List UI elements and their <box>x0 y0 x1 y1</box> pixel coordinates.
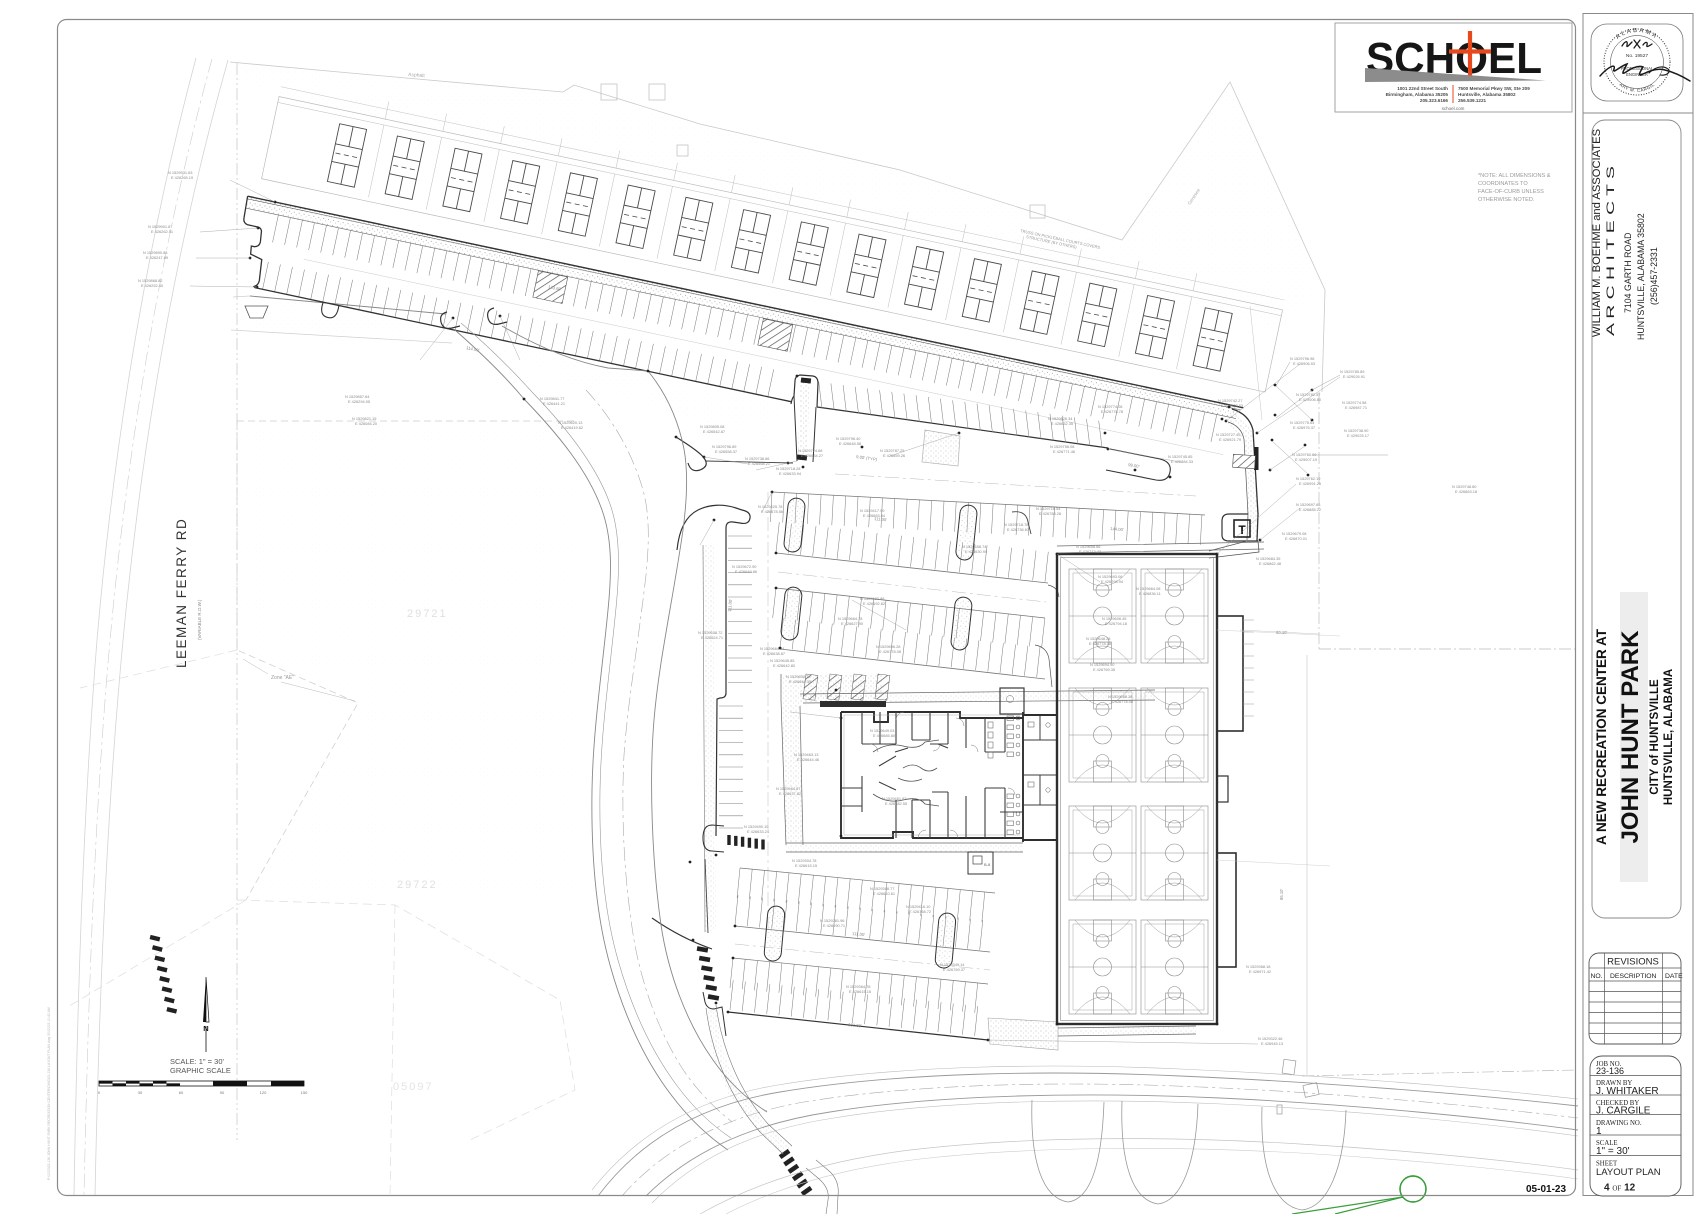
svg-text:E 429025.17: E 429025.17 <box>1347 433 1369 438</box>
svg-text:A R C H I T E C T S: A R C H I T E C T S <box>1605 166 1617 336</box>
svg-text:E 426637.82: E 426637.82 <box>779 791 801 796</box>
svg-text:E 426736.67: E 426736.67 <box>1007 527 1029 532</box>
svg-text:E 426788.28: E 426788.28 <box>1039 511 1061 516</box>
svg-text:WILLIAM M. BOEHME and ASSOCIAT: WILLIAM M. BOEHME and ASSOCIATES <box>1591 129 1603 337</box>
svg-text:E 426558.37: E 426558.37 <box>715 449 737 454</box>
svg-text:E 426542.87: E 426542.87 <box>703 429 725 434</box>
svg-text:E 426885.22: E 426885.22 <box>1299 507 1321 512</box>
svg-text:N: N <box>203 1024 208 1033</box>
svg-text:E 426644.46: E 426644.46 <box>797 757 819 762</box>
svg-text:CITY of HUNTSVILLE: CITY of HUNTSVILLE <box>1649 679 1661 795</box>
svg-text:E 426769.35: E 426769.35 <box>1093 667 1115 672</box>
svg-text:FACE-OF-CURB UNLESS: FACE-OF-CURB UNLESS <box>1478 189 1544 195</box>
svg-text:E 429006.80: E 429006.80 <box>1299 397 1322 402</box>
svg-text:E 426921.79: E 426921.79 <box>1219 437 1241 442</box>
svg-text:E 426615.15: E 426615.15 <box>795 863 817 868</box>
svg-text:(VARIABLE R.O.W.): (VARIABLE R.O.W.) <box>197 599 202 640</box>
svg-text:HUNTSVILLE, ALABAMA: HUNTSVILLE, ALABAMA <box>1663 669 1675 805</box>
svg-text:E 426638.87: E 426638.87 <box>763 651 785 656</box>
svg-text:E 426642.80: E 426642.80 <box>773 663 796 668</box>
svg-text:E 426683.64: E 426683.64 <box>863 513 886 518</box>
svg-text:OTHERWISE NOTED.: OTHERWISE NOTED. <box>1478 197 1535 203</box>
svg-text:E 426987.71: E 426987.71 <box>1345 405 1367 410</box>
svg-text:E 426971.42: E 426971.42 <box>1249 969 1271 974</box>
svg-text:E 426976.37: E 426976.37 <box>1293 425 1315 430</box>
svg-text:Birmingham, Alabama 35205: Birmingham, Alabama 35205 <box>1386 92 1449 97</box>
svg-text:DESCRIPTION: DESCRIPTION <box>1610 973 1657 980</box>
svg-text:E 426627.90: E 426627.90 <box>841 621 864 626</box>
svg-text:E 426778.08: E 426778.08 <box>1089 641 1111 646</box>
svg-text:30: 30 <box>138 1090 143 1095</box>
svg-text:29721: 29721 <box>407 608 448 620</box>
svg-text:E 426633.94: E 426633.94 <box>779 471 802 476</box>
svg-text:29722: 29722 <box>397 879 438 891</box>
svg-text:E 426624.71: E 426624.71 <box>701 635 723 640</box>
svg-text:4 OF 12: 4 OF 12 <box>1604 1183 1636 1194</box>
svg-text:E 426945.13: E 426945.13 <box>1261 1041 1283 1046</box>
svg-text:E 426906.53: E 426906.53 <box>1293 361 1315 366</box>
svg-text:7104 GARTH ROAD: 7104 GARTH ROAD <box>1623 232 1633 313</box>
svg-text:E 426713.43: E 426713.43 <box>1079 549 1101 554</box>
svg-text:E 426778.08: E 426778.08 <box>1111 699 1133 704</box>
svg-text:205.323.6166: 205.323.6166 <box>1420 98 1449 103</box>
svg-text:E 426294.05: E 426294.05 <box>348 399 370 404</box>
svg-text:E 429026.91: E 429026.91 <box>1343 374 1365 379</box>
svg-text:E 426419.62: E 426419.62 <box>561 425 583 430</box>
svg-text:DRAWING NO.: DRAWING NO. <box>1596 1120 1642 1127</box>
svg-text:*NOTE: ALL DIMENSIONS &: *NOTE: ALL DIMENSIONS & <box>1478 173 1551 179</box>
svg-text:05097: 05097 <box>393 1081 434 1093</box>
svg-text:schoel.com: schoel.com <box>1442 106 1465 111</box>
svg-text:Huntsville, Alabama 35802: Huntsville, Alabama 35802 <box>1458 92 1516 97</box>
svg-text:1001 22nd Street South: 1001 22nd Street South <box>1397 86 1448 91</box>
svg-text:E 426649.86: E 426649.86 <box>735 569 757 574</box>
svg-text:1" = 30': 1" = 30' <box>1596 1146 1630 1157</box>
svg-text:E 426659.26: E 426659.26 <box>883 453 905 458</box>
svg-text:SCALE: 1" = 30': SCALE: 1" = 30' <box>170 1057 224 1066</box>
svg-text:60: 60 <box>179 1090 184 1095</box>
svg-text:E 426192.82: E 426192.82 <box>863 601 885 606</box>
svg-text:E 426646.35: E 426646.35 <box>789 679 811 684</box>
svg-text:T: T <box>1238 523 1246 537</box>
svg-text:Zone "AE": Zone "AE" <box>271 675 294 681</box>
svg-text:E 426768.72: E 426768.72 <box>909 909 931 914</box>
svg-text:REVISIONS: REVISIONS <box>1607 957 1659 968</box>
svg-text:Asphalt: Asphalt <box>408 72 426 79</box>
svg-text:23-136: 23-136 <box>1596 1066 1624 1076</box>
svg-text:E 426615.15: E 426615.15 <box>849 989 871 994</box>
svg-text:E 426682.55: E 426682.55 <box>885 801 907 806</box>
svg-text:E 426862.48: E 426862.48 <box>1259 561 1281 566</box>
svg-text:E 426991.26: E 426991.26 <box>1299 481 1321 486</box>
svg-text:E 426648.58: E 426648.58 <box>839 441 861 446</box>
svg-text:E 426690.71: E 426690.71 <box>823 923 845 928</box>
svg-text:E 426568.21: E 426568.21 <box>748 461 770 466</box>
svg-text:1: 1 <box>1596 1126 1602 1137</box>
svg-text:E 426678.56: E 426678.56 <box>761 509 783 514</box>
svg-text:E 426863.18: E 426863.18 <box>1455 489 1477 494</box>
svg-text:05-01-23: 05-01-23 <box>1526 1184 1566 1195</box>
svg-text:E 426632.35: E 426632.35 <box>1051 421 1073 426</box>
svg-text:NO.: NO. <box>1590 973 1602 980</box>
svg-text:E 426084.20: E 426084.20 <box>355 421 378 426</box>
svg-text:JOHN HUNT PARK: JOHN HUNT PARK <box>1617 630 1644 844</box>
svg-text:DATE: DATE <box>1665 973 1683 980</box>
svg-text:E 426794.18: E 426794.18 <box>1105 621 1127 626</box>
svg-text:256.539.1221: 256.539.1221 <box>1458 98 1487 103</box>
svg-text:E 426610.61: E 426610.61 <box>873 891 895 896</box>
svg-text:E 426769.37: E 426769.37 <box>943 967 965 972</box>
svg-text:E 426630.90: E 426630.90 <box>965 549 988 554</box>
svg-text:120: 120 <box>260 1090 267 1095</box>
svg-text:No. 19527: No. 19527 <box>1626 53 1648 59</box>
svg-text:E 426441.21: E 426441.21 <box>543 401 565 406</box>
svg-text:E 426771.46: E 426771.46 <box>1053 449 1075 454</box>
svg-text:GRAPHIC SCALE: GRAPHIC SCALE <box>170 1066 231 1075</box>
svg-text:J. CARGILE: J. CARGILE <box>1596 1106 1651 1117</box>
svg-text:A NEW RECREATION CENTER AT: A NEW RECREATION CENTER AT <box>1594 628 1609 845</box>
svg-text:7500 Memorial Pkwy SW, Ste 209: 7500 Memorial Pkwy SW, Ste 209 <box>1458 86 1530 91</box>
svg-text:E 426884.33: E 426884.33 <box>1171 459 1193 464</box>
svg-text:HUNTSVILLE, ALABAMA 35802: HUNTSVILLE, ALABAMA 35802 <box>1636 213 1646 340</box>
svg-text:111.00': 111.00' <box>727 599 733 613</box>
svg-text:E 426836.11: E 426836.11 <box>1139 591 1161 596</box>
svg-text:E 426633.24: E 426633.24 <box>747 829 770 834</box>
svg-text:LAYOUT PLAN: LAYOUT PLAN <box>1596 1167 1661 1178</box>
svg-text:J. WHITAKER: J. WHITAKER <box>1596 1086 1659 1097</box>
svg-text:E 426247.89: E 426247.89 <box>146 255 168 260</box>
svg-text:E 426634.27: E 426634.27 <box>801 453 823 458</box>
svg-text:E 429007.19: E 429007.19 <box>1295 457 1317 462</box>
svg-text:E 426923.63: E 426923.63 <box>1221 403 1243 408</box>
svg-text:E 426798.94: E 426798.94 <box>1101 579 1124 584</box>
svg-text:COORDINATES TO: COORDINATES TO <box>1478 181 1528 187</box>
svg-text:E 426262.51: E 426262.51 <box>151 229 173 234</box>
svg-text:B-8: B-8 <box>984 862 991 867</box>
svg-text:150: 150 <box>301 1090 308 1095</box>
svg-text:90: 90 <box>220 1090 225 1095</box>
svg-text:E 426870.01: E 426870.01 <box>1285 536 1307 541</box>
svg-text:E 426778.78: E 426778.78 <box>1101 409 1123 414</box>
svg-text:86.10': 86.10' <box>1279 889 1284 900</box>
svg-text:E 426252.40: E 426252.40 <box>141 283 164 288</box>
svg-text:E 426685.80: E 426685.80 <box>873 733 896 738</box>
svg-text:(256)457-2331: (256)457-2331 <box>1649 247 1659 305</box>
svg-text:LEEMAN FERRY RD: LEEMAN FERRY RD <box>174 518 189 668</box>
svg-text:P:\2023\23-136 JOHN HUNT PARK: P:\2023\23-136 JOHN HUNT PARK RECREATION… <box>47 1007 51 1180</box>
svg-text:E 426778.08: E 426778.08 <box>879 649 901 654</box>
svg-text:E 426265.19: E 426265.19 <box>171 175 193 180</box>
